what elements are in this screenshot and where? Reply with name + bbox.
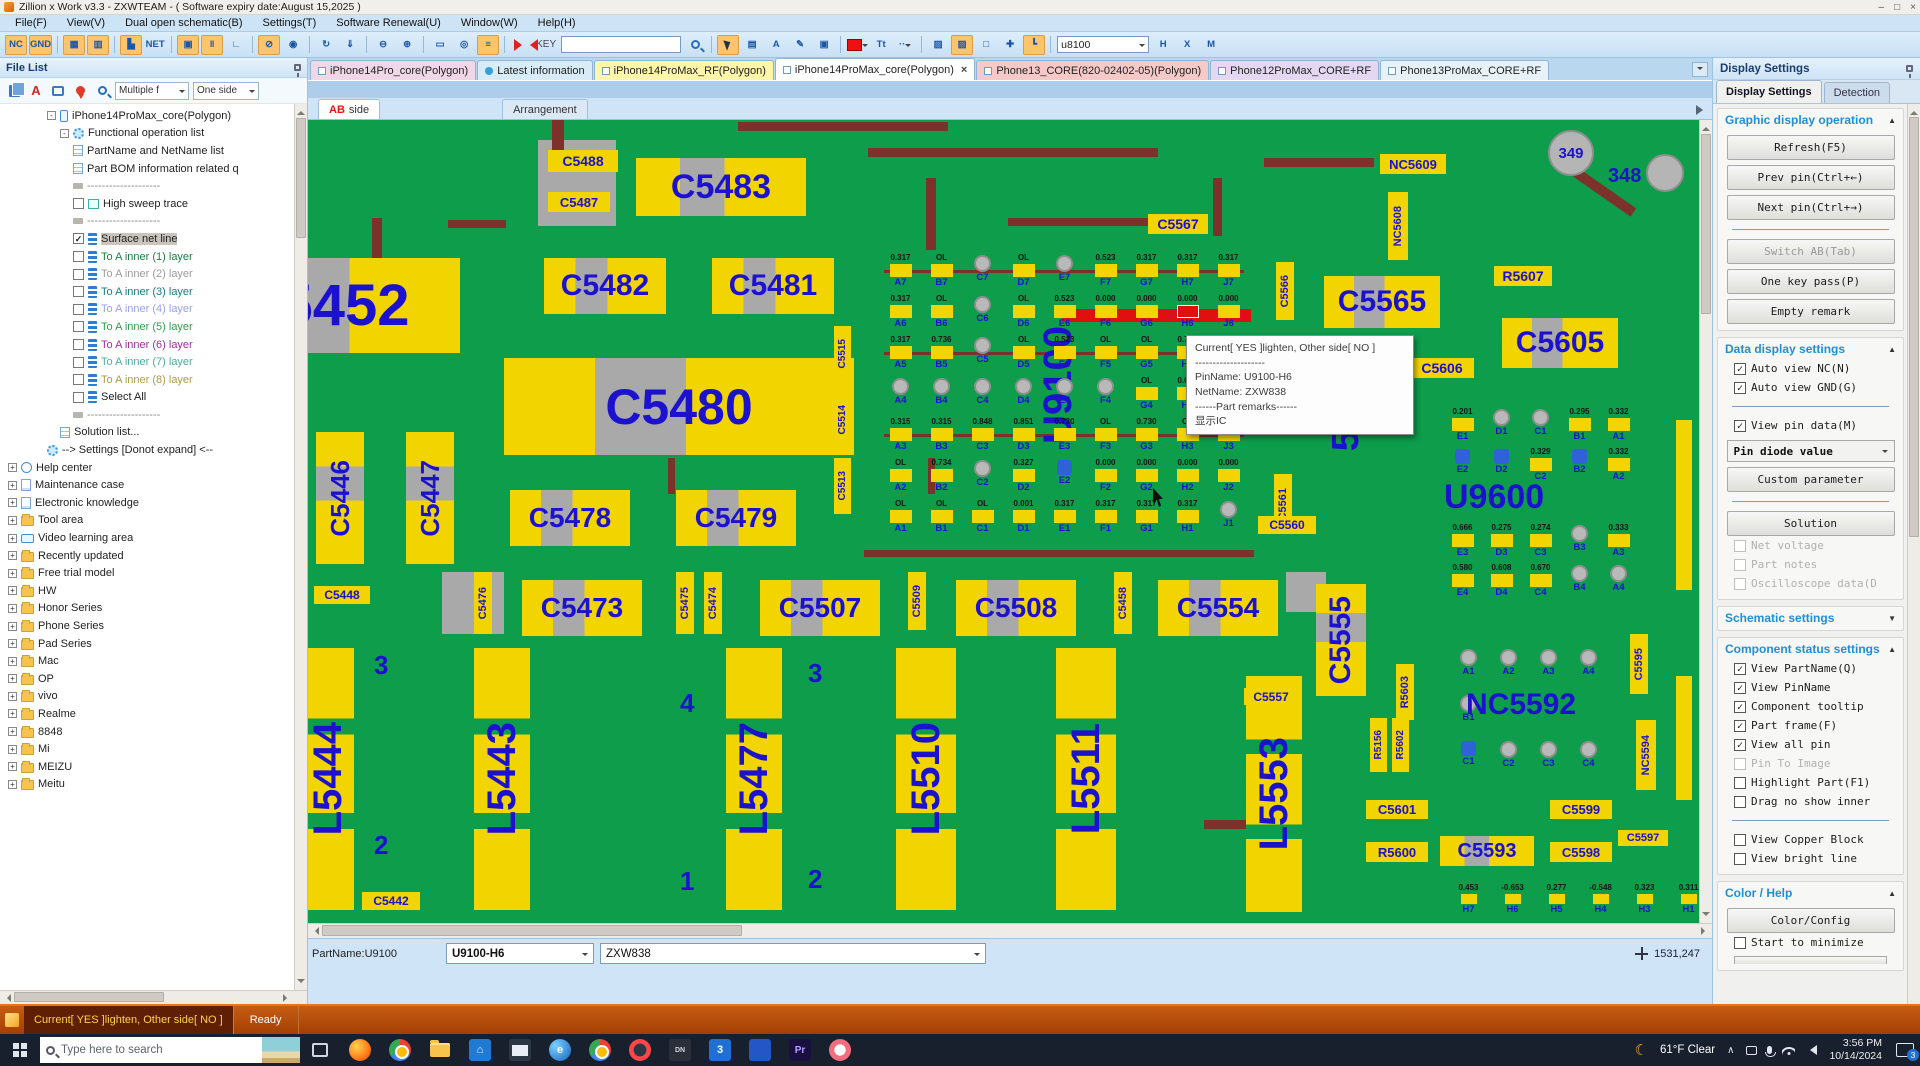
bga-pin-u9100-A3[interactable]: 0.315A3 — [880, 418, 921, 452]
bga-pin-u9100-J7[interactable]: 0.317J7 — [1208, 254, 1249, 288]
pages-icon[interactable] — [5, 82, 23, 100]
bga-pin-u9100-C2[interactable]: C2 — [962, 459, 1003, 488]
checkbox-view-partname[interactable]: ✓View PartName(Q) — [1718, 659, 1903, 678]
canvas-horizontal-scrollbar[interactable] — [308, 923, 1712, 938]
bga-pin-u9100-B5[interactable]: 0.736B5 — [921, 336, 962, 370]
firefox-icon[interactable] — [340, 1034, 380, 1066]
tree-item-3[interactable]: PartName and NetName list — [2, 142, 307, 160]
component-C5555[interactable]: C5555 — [1316, 584, 1366, 696]
bga-pin-u9100-E5[interactable]: 0.523E5 — [1044, 336, 1085, 370]
bga-pin-u9100-F5[interactable]: OLF5 — [1085, 336, 1126, 370]
expand-icon[interactable]: ▼ — [1888, 614, 1896, 623]
tree-item-18[interactable]: -------------------- — [2, 406, 307, 424]
keyboard-icon[interactable]: ▤ — [741, 35, 763, 55]
app-three-icon[interactable]: 3 — [700, 1034, 740, 1066]
tree-item-39[interactable]: +Meitu — [2, 776, 307, 794]
expand-toggle-icon[interactable]: + — [8, 657, 17, 666]
component-L5444[interactable]: L5444 — [308, 648, 354, 910]
component-NC5594[interactable]: NC5594 — [1636, 720, 1656, 790]
component-C5595[interactable]: C5595 — [1630, 634, 1648, 694]
part-combo[interactable]: u8100 — [1057, 36, 1149, 53]
tab-overflow-button[interactable] — [1692, 62, 1708, 77]
component-C5566[interactable]: C5566 — [1276, 262, 1294, 320]
dark-app-icon[interactable]: DN — [660, 1034, 700, 1066]
bga-pin-u9100-A2[interactable]: OLA2 — [880, 459, 921, 493]
bga-pin-u9100-H1[interactable]: 0.317H1 — [1167, 500, 1208, 534]
gnd-button[interactable]: GND — [29, 35, 52, 55]
bga-pin-nc5592-A3[interactable]: A3 — [1528, 648, 1569, 677]
checkbox-start-minimize[interactable]: Start to minimize — [1718, 933, 1903, 952]
store-icon[interactable]: ⌂ — [460, 1034, 500, 1066]
expand-toggle-icon[interactable]: + — [8, 586, 17, 595]
fullscreen-icon[interactable]: ▣ — [177, 35, 199, 55]
tree-item-27[interactable]: +Free trial model — [2, 564, 307, 582]
tab-ab-side[interactable]: AB side — [318, 99, 380, 119]
tree-item-30[interactable]: +Phone Series — [2, 617, 307, 635]
pcb-grid-icon[interactable]: ▦ — [63, 35, 85, 55]
component-C5508[interactable]: C5508 — [956, 580, 1076, 636]
bga-pin-u9600-C4[interactable]: 0.670C4 — [1520, 564, 1561, 598]
menu-item-4[interactable]: Settings(T) — [253, 16, 325, 30]
tree-item-5[interactable]: -------------------- — [2, 177, 307, 195]
color-swatch[interactable] — [846, 35, 868, 55]
component-L5553[interactable]: L5553 — [1246, 676, 1302, 912]
bga-pin-u9100-B6[interactable]: OLB6 — [921, 295, 962, 329]
text-a-icon[interactable]: A — [765, 35, 787, 55]
checkbox-auto-view-gnd[interactable]: ✓Auto view GND(G) — [1718, 378, 1903, 397]
bga-pin-u9100-C6[interactable]: C6 — [962, 295, 1003, 324]
file-list-vertical-scrollbar[interactable] — [294, 104, 307, 990]
bga-pin-u9600-B3[interactable]: B3 — [1559, 524, 1600, 553]
checkbox-view-copper[interactable]: View Copper Block — [1718, 830, 1903, 849]
checkbox-view-pin-data[interactable]: ✓View pin data(M) — [1718, 416, 1903, 435]
expand-toggle-icon[interactable]: - — [60, 129, 69, 138]
component-C5565[interactable]: C5565 — [1324, 276, 1440, 328]
component-C5488[interactable]: C5488 — [548, 150, 618, 172]
bga-pin-u9600-B1[interactable]: 0.295B1 — [1559, 408, 1600, 442]
tree-checkbox[interactable] — [73, 304, 84, 315]
measure-icon[interactable]: ∟ — [225, 35, 247, 55]
bga-pin-u9600-A4[interactable]: A4 — [1598, 564, 1639, 593]
component-L5510[interactable]: L5510 — [896, 648, 956, 910]
tree-checkbox[interactable] — [73, 251, 84, 262]
bga-pin-u9600-E1[interactable]: 0.201E1 — [1442, 408, 1483, 442]
image-icon[interactable]: ▨ — [927, 35, 949, 55]
component-C5605[interactable]: C5605 — [1502, 318, 1618, 368]
menu-item-7[interactable]: Help(H) — [529, 16, 585, 30]
bga-pin-u9100-J6[interactable]: 0.000J6 — [1208, 295, 1249, 329]
pcb-canvas[interactable]: 5452C5488C5487C5483C5482C5481C5480C5446C… — [308, 120, 1699, 923]
expand-toggle-icon[interactable]: + — [8, 762, 17, 771]
component-C5476[interactable]: C5476 — [474, 572, 492, 634]
camera-icon[interactable] — [820, 1034, 860, 1066]
expand-toggle-icon[interactable]: + — [8, 604, 17, 613]
pin-diode-select[interactable]: Pin diode value — [1727, 440, 1895, 462]
bga-pin-u9100-D3[interactable]: 0.851D3 — [1003, 418, 1044, 452]
text-style-icon[interactable]: Tt — [870, 35, 892, 55]
seat-icon[interactable]: ┗ — [1023, 35, 1045, 55]
edge-icon[interactable]: e — [540, 1034, 580, 1066]
image-green-icon[interactable]: ▨ — [951, 35, 973, 55]
bga-pin-bottom-H5[interactable]: 0.277H5 — [1536, 884, 1577, 915]
collapse-icon[interactable]: ▲ — [1888, 889, 1896, 898]
tree-item-19[interactable]: Solution list... — [2, 424, 307, 442]
component-C5448[interactable]: C5448 — [314, 586, 370, 604]
expand-toggle-icon[interactable]: + — [8, 463, 17, 472]
maximize-button[interactable]: □ — [1894, 2, 1900, 13]
tree-item-31[interactable]: +Pad Series — [2, 635, 307, 653]
checkbox-drag-no-show[interactable]: Drag no show inner — [1718, 792, 1903, 811]
component-C5597[interactable]: C5597 — [1618, 830, 1668, 846]
side-select[interactable]: One side — [193, 82, 259, 100]
bga-pin-u9100-C1[interactable]: OLC1 — [962, 500, 1003, 534]
bga-pin-u9600-C1[interactable]: C1 — [1520, 408, 1561, 437]
close-x-icon[interactable]: X — [1176, 35, 1198, 55]
bga-pin-bottom-H3[interactable]: 0.323H3 — [1624, 884, 1665, 915]
pin-icon[interactable] — [1906, 65, 1913, 72]
component-C5487[interactable]: C5487 — [548, 192, 610, 212]
bga-pin-u9100-G3[interactable]: 0.730G3 — [1126, 418, 1167, 452]
tree-item-36[interactable]: +8848 — [2, 723, 307, 741]
bga-pin-nc5592-C1[interactable]: C1 — [1448, 740, 1489, 767]
tree-item-21[interactable]: +Help center — [2, 459, 307, 477]
bga-pin-u9100-D5[interactable]: OLD5 — [1003, 336, 1044, 370]
tray-chevron-icon[interactable]: ∧ — [1727, 1045, 1734, 1056]
component-C5458[interactable]: C5458 — [1114, 572, 1132, 634]
tree-item-20[interactable]: --> Settings [Donot expand] <-- — [2, 441, 307, 459]
component-R5600[interactable]: R5600 — [1366, 842, 1428, 862]
bga-pin-u9100-F3[interactable]: OLF3 — [1085, 418, 1126, 452]
wifi-icon[interactable] — [1782, 1046, 1795, 1055]
mail-icon[interactable] — [500, 1034, 540, 1066]
pin-select[interactable]: U9100-H6 — [446, 943, 594, 964]
window-grid-icon[interactable]: □ — [975, 35, 997, 55]
component-C5514[interactable]: C5514 — [834, 392, 851, 448]
component-C5447[interactable]: C5447 — [406, 432, 454, 564]
bga-pin-u9100-B2[interactable]: 0.734B2 — [921, 459, 962, 493]
net-icon[interactable]: NET — [144, 35, 166, 55]
empty-remark-button[interactable]: Empty remark — [1727, 299, 1895, 324]
tree-item-29[interactable]: +Honor Series — [2, 600, 307, 618]
expand-toggle-icon[interactable]: + — [8, 534, 17, 543]
tab-detection[interactable]: Detection — [1824, 82, 1890, 103]
expand-toggle-icon[interactable]: + — [8, 674, 17, 683]
bga-pin-u9600-D4[interactable]: 0.608D4 — [1481, 564, 1522, 598]
tree-item-9[interactable]: To A inner (1) layer — [2, 248, 307, 266]
chrome-icon[interactable] — [380, 1034, 420, 1066]
tree-item-34[interactable]: +vivo — [2, 688, 307, 706]
file-explorer-icon[interactable] — [420, 1034, 460, 1066]
tree-item-12[interactable]: To A inner (4) layer — [2, 301, 307, 319]
checkbox-view-all-pin[interactable]: ✓View all pin — [1718, 735, 1903, 754]
tree-item-24[interactable]: +Tool area — [2, 512, 307, 530]
bga-pin-u9100-E1[interactable]: 0.317E1 — [1044, 500, 1085, 534]
component-R5607[interactable]: R5607 — [1494, 266, 1552, 286]
checkbox-highlight-part[interactable]: Highlight Part(F1) — [1718, 773, 1903, 792]
bga-pin-u9100-H6[interactable]: 0.000H6 — [1167, 295, 1208, 329]
location-pin-icon[interactable] — [71, 82, 89, 100]
component-5452[interactable]: 5452 — [308, 258, 460, 353]
bga-pin-u9600-B2[interactable]: B2 — [1559, 448, 1600, 475]
bga-pin-u9600-D1[interactable]: D1 — [1481, 408, 1522, 437]
menu-item-2[interactable]: View(V) — [58, 16, 114, 30]
pen-icon[interactable]: ✎ — [789, 35, 811, 55]
bga-pin-u9100-A4[interactable]: A4 — [880, 377, 921, 406]
checkbox-view-pinname[interactable]: ✓View PinName — [1718, 678, 1903, 697]
expand-toggle-icon[interactable]: + — [8, 622, 17, 631]
bga-pin-u9100-G4[interactable]: OLG4 — [1126, 377, 1167, 411]
document-tab-6[interactable]: Phone12ProMax_CORE+RF — [1210, 60, 1379, 80]
select-cursor-icon[interactable] — [717, 35, 739, 55]
bga-pin-nc5592-C3[interactable]: C3 — [1528, 740, 1569, 769]
bga-pin-nc5592-A2[interactable]: A2 — [1488, 648, 1529, 677]
bga-pin-u9100-C5[interactable]: C5 — [962, 336, 1003, 365]
bga-pin-u9100-C7[interactable]: C7 — [962, 254, 1003, 283]
tree-item-33[interactable]: +OP — [2, 670, 307, 688]
tree-item-14[interactable]: To A inner (6) layer — [2, 336, 307, 354]
component-C5481[interactable]: C5481 — [712, 258, 834, 314]
test-point-pad[interactable] — [1646, 154, 1684, 192]
tree-item-32[interactable]: +Mac — [2, 652, 307, 670]
bga-pin-u9100-J2[interactable]: 0.000J2 — [1208, 459, 1249, 493]
bga-pin-u9100-H2[interactable]: 0.000H2 — [1167, 459, 1208, 493]
collapse-icon[interactable]: ▲ — [1888, 345, 1896, 354]
bga-pin-u9100-B4[interactable]: B4 — [921, 377, 962, 406]
component-R5602[interactable]: R5602 — [1392, 718, 1409, 772]
tree-item-15[interactable]: To A inner (7) layer — [2, 353, 307, 371]
bga-pin-u9100-D7[interactable]: OLD7 — [1003, 254, 1044, 288]
w-circle-icon[interactable]: ◉ — [282, 35, 304, 55]
tree-item-26[interactable]: +Recently updated — [2, 547, 307, 565]
expand-toggle-icon[interactable]: + — [8, 709, 17, 718]
bga-pin-bottom-H4[interactable]: -0.548H4 — [1580, 884, 1621, 915]
bga-pin-u9600-E4[interactable]: 0.580E4 — [1442, 564, 1483, 598]
browser-icon[interactable] — [580, 1034, 620, 1066]
export-icon[interactable] — [49, 82, 67, 100]
bga-pin-u9100-D4[interactable]: D4 — [1003, 377, 1044, 406]
weather-text[interactable]: 61°F Clear — [1660, 1044, 1715, 1056]
expand-toggle-icon[interactable]: + — [8, 745, 17, 754]
component-C5483[interactable]: C5483 — [636, 158, 806, 216]
component-R5603[interactable]: R5603 — [1396, 664, 1414, 720]
bga-pin-u9100-G2[interactable]: 0.000G2 — [1126, 459, 1167, 493]
multiple-filter-select[interactable]: Multiple f — [115, 82, 189, 100]
bga-pin-nc5592-A4[interactable]: A4 — [1568, 648, 1609, 677]
test-point-349[interactable]: 349 — [1548, 130, 1594, 176]
component-C5509[interactable]: C5509 — [908, 572, 926, 630]
bga-pin-u9100-D1[interactable]: 0.001D1 — [1003, 500, 1044, 534]
component-C5601[interactable]: C5601 — [1366, 800, 1428, 819]
bga-pin-u9100-F2[interactable]: 0.000F2 — [1085, 459, 1126, 493]
premiere-icon[interactable]: Pr — [780, 1034, 820, 1066]
component-C5475[interactable]: C5475 — [676, 572, 694, 634]
bga-pin-u9100-E2[interactable]: E2 — [1044, 459, 1085, 486]
refresh-button[interactable]: Refresh(F5) — [1727, 135, 1895, 160]
menu-item-5[interactable]: Software Renewal(U) — [327, 16, 450, 30]
bga-pin-bottom-H1[interactable]: 0.311H1 — [1668, 884, 1699, 915]
tree-checkbox[interactable] — [73, 339, 84, 350]
bga-pin-u9100-G5[interactable]: OLG5 — [1126, 336, 1167, 370]
net-select[interactable]: ZXW838 — [600, 943, 986, 964]
bga-pin-u9100-E6[interactable]: 0.523E6 — [1044, 295, 1085, 329]
expand-toggle-icon[interactable]: + — [8, 481, 17, 490]
ruler-icon[interactable]: ▭ — [429, 35, 451, 55]
canvas-vertical-scrollbar[interactable] — [1699, 120, 1712, 923]
component-R5156[interactable]: R5156 — [1370, 718, 1387, 772]
tree-item-13[interactable]: To A inner (5) layer — [2, 318, 307, 336]
expand-toggle-icon[interactable]: + — [8, 569, 17, 578]
tree-checkbox[interactable] — [73, 269, 84, 280]
close-tab-icon[interactable]: × — [961, 64, 967, 76]
tree-item-7[interactable]: -------------------- — [2, 213, 307, 231]
component-C5507[interactable]: C5507 — [760, 580, 880, 636]
bga-pin-u9100-B1[interactable]: OLB1 — [921, 500, 962, 534]
checkbox-view-bright-line[interactable]: View bright line — [1718, 849, 1903, 868]
component-C5474[interactable]: C5474 — [704, 572, 722, 634]
bga-pin-nc5592-C4[interactable]: C4 — [1568, 740, 1609, 769]
search-icon[interactable] — [684, 35, 706, 55]
tree-item-25[interactable]: +Video learning area — [2, 529, 307, 547]
tree-item-38[interactable]: +MEIZU — [2, 758, 307, 776]
size-picker-icon[interactable]: ·· — [894, 35, 916, 55]
tree-item-8[interactable]: ✓Surface net line — [2, 230, 307, 248]
component-C5446[interactable]: C5446 — [316, 432, 364, 564]
start-button[interactable] — [0, 1034, 40, 1066]
tree-item-28[interactable]: +HW — [2, 582, 307, 600]
save-icon[interactable]: H — [1152, 35, 1174, 55]
file-list-horizontal-scrollbar[interactable] — [0, 990, 307, 1004]
label-a-icon[interactable]: A — [27, 82, 45, 100]
blue-app-icon[interactable] — [740, 1034, 780, 1066]
zoom-in-icon[interactable]: ⊕ — [396, 35, 418, 55]
bga-pin-u9100-A5[interactable]: 0.317A5 — [880, 336, 921, 370]
tab-display-settings[interactable]: Display Settings — [1716, 80, 1822, 103]
next-pin-button[interactable]: Next pin(Ctrl+→) — [1727, 195, 1895, 220]
tree-item-10[interactable]: To A inner (2) layer — [2, 265, 307, 283]
m-icon[interactable]: M — [1200, 35, 1222, 55]
bga-pin-u9100-E7[interactable]: E7 — [1044, 254, 1085, 283]
pcb-list-icon[interactable]: ▥ — [87, 35, 109, 55]
prev-pin-button[interactable]: Prev pin(Ctrl+←) — [1727, 165, 1895, 190]
bga-pin-u9600-D3[interactable]: 0.275D3 — [1481, 524, 1522, 558]
tree-item-4[interactable]: Part BOM information related q — [2, 160, 307, 178]
tree-item-2[interactable]: -Functional operation list — [2, 125, 307, 143]
speaker-icon[interactable] — [1805, 1045, 1817, 1055]
component-NC5608[interactable]: NC5608 — [1388, 192, 1408, 260]
checkbox-auto-view-nc[interactable]: ✓Auto view NC(N) — [1718, 359, 1903, 378]
close-button[interactable]: × — [1910, 2, 1916, 13]
bga-pin-u9100-C4[interactable]: C4 — [962, 377, 1003, 406]
tree-item-16[interactable]: To A inner (8) layer — [2, 371, 307, 389]
menu-item-3[interactable]: Dual open schematic(B) — [116, 16, 251, 30]
bga-pin-bottom-H7[interactable]: 0.453H7 — [1448, 884, 1489, 915]
import-icon[interactable]: ⇓ — [339, 35, 361, 55]
bga-pin-u9100-A6[interactable]: 0.317A6 — [880, 295, 921, 329]
bga-pin-u9100-F1[interactable]: 0.317F1 — [1085, 500, 1126, 534]
pushpin-icon[interactable]: ✚ — [999, 35, 1021, 55]
bga-pin-u9100-C3[interactable]: 0.848C3 — [962, 418, 1003, 452]
component-C5515[interactable]: C5515 — [834, 326, 851, 382]
tab-arrangement[interactable]: Arrangement — [502, 99, 588, 119]
tree-checkbox[interactable] — [73, 392, 84, 403]
bga-pin-u9600-B4[interactable]: B4 — [1559, 564, 1600, 593]
component-C5482[interactable]: C5482 — [544, 258, 666, 314]
globe-icon[interactable]: ◎ — [453, 35, 475, 55]
tree-checkbox[interactable] — [73, 198, 84, 209]
checkbox-part-frame[interactable]: ✓Part frame(F) — [1718, 716, 1903, 735]
bga-pin-u9100-G6[interactable]: 0.000G6 — [1126, 295, 1167, 329]
component-C5557[interactable]: C5557 — [1244, 688, 1298, 705]
sync-icon[interactable]: ↻ — [315, 35, 337, 55]
bga-pin-u9100-A1[interactable]: OLA1 — [880, 500, 921, 534]
component-L5477[interactable]: L5477 — [726, 648, 782, 910]
zoom-out-icon[interactable]: ⊖ — [372, 35, 394, 55]
bga-pin-u9600-C3[interactable]: 0.274C3 — [1520, 524, 1561, 558]
settings-vertical-scrollbar[interactable] — [1907, 104, 1920, 1004]
expand-toggle-icon[interactable]: + — [8, 551, 17, 560]
pin-icon[interactable] — [294, 64, 301, 71]
color-config-button[interactable]: Color/Config — [1727, 908, 1895, 933]
tree-item-23[interactable]: +Electronic knowledge — [2, 494, 307, 512]
component-L5443[interactable]: L5443 — [474, 648, 530, 910]
tray-app-icon[interactable] — [1746, 1046, 1757, 1055]
tree-item-17[interactable]: Select All — [2, 389, 307, 407]
expand-toggle-icon[interactable]: + — [8, 639, 17, 648]
bga-pin-u9100-A7[interactable]: 0.317A7 — [880, 254, 921, 288]
tree-item-11[interactable]: To A inner (3) layer — [2, 283, 307, 301]
tree-item-37[interactable]: +Mi — [2, 740, 307, 758]
component-C5593[interactable]: C5593 — [1440, 836, 1534, 866]
component-C5473[interactable]: C5473 — [522, 580, 642, 636]
expand-toggle-icon[interactable]: + — [8, 780, 17, 789]
expand-toggle-icon[interactable]: + — [8, 516, 17, 525]
component-C5478[interactable]: C5478 — [510, 490, 630, 546]
tree-item-35[interactable]: +Realme — [2, 705, 307, 723]
opera-icon[interactable] — [620, 1034, 660, 1066]
document-tab-7[interactable]: Phone13ProMax_CORE+RF — [1380, 60, 1549, 80]
bga-pin-u9600-E2[interactable]: E2 — [1442, 448, 1483, 475]
component-C5479[interactable]: C5479 — [676, 490, 796, 546]
bga-pin-u9100-E4[interactable]: E4 — [1044, 377, 1085, 406]
camera-icon[interactable]: ▣ — [813, 35, 835, 55]
disable-icon[interactable]: ⊘ — [258, 35, 280, 55]
bga-pin-u9100-B7[interactable]: OLB7 — [921, 254, 962, 288]
tree-item-6[interactable]: High sweep trace — [2, 195, 307, 213]
bga-pin-u9600-D2[interactable]: D2 — [1481, 448, 1522, 475]
taskbar-clock[interactable]: 3:56 PM 10/14/2024 — [1829, 1037, 1882, 1063]
component-C5513[interactable]: C5513 — [834, 458, 851, 514]
minimize-button[interactable]: – — [1879, 2, 1885, 13]
tree-checkbox[interactable]: ✓ — [73, 233, 84, 244]
bga-pin-u9100-G7[interactable]: 0.317G7 — [1126, 254, 1167, 288]
custom-parameter-button[interactable]: Custom parameter — [1727, 467, 1895, 492]
bga-pin-u9100-D2[interactable]: 0.327D2 — [1003, 459, 1044, 493]
parts-chart-icon[interactable]: ▙ — [120, 35, 142, 55]
nc-button[interactable]: NC — [5, 35, 27, 55]
component-C5560[interactable]: C5560 — [1258, 516, 1316, 534]
bga-pin-u9600-A2[interactable]: 0.332A2 — [1598, 448, 1639, 482]
component-C5554[interactable]: C5554 — [1158, 580, 1278, 636]
search-icon[interactable] — [93, 82, 111, 100]
bga-pin-nc5592-C2[interactable]: C2 — [1488, 740, 1529, 769]
document-tab-1[interactable]: iPhone14Pro_core(Polygon) — [310, 60, 476, 80]
tree-checkbox[interactable] — [73, 357, 84, 368]
notification-icon[interactable]: 3 — [1896, 1043, 1914, 1057]
document-tab-5[interactable]: Phone13_CORE(820-02402-05)(Polygon) — [976, 60, 1209, 80]
tree-item-22[interactable]: +Maintenance case — [2, 476, 307, 494]
bga-pin-u9100-F7[interactable]: 0.523F7 — [1085, 254, 1126, 288]
bga-pin-u9100-H7[interactable]: 0.317H7 — [1167, 254, 1208, 288]
